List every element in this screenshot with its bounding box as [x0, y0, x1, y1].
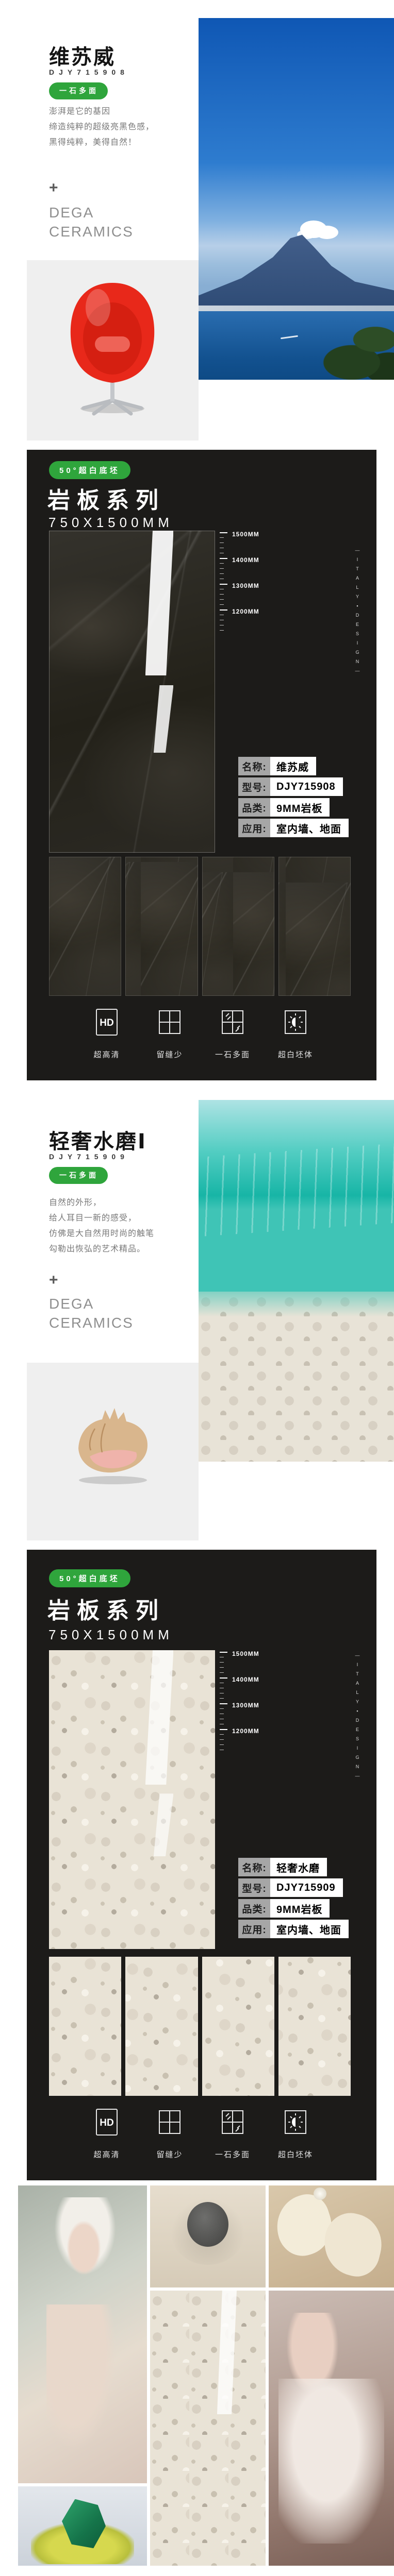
tile-panel: [202, 857, 274, 996]
hero-image-vesuvius: [199, 18, 394, 380]
product-title: 维苏威: [49, 40, 116, 70]
brand-line: DEGA: [49, 1294, 134, 1313]
description-line: 黑得纯粹，美得自然！: [49, 135, 154, 150]
tile-panel: [125, 857, 198, 996]
feature-label: 留缝少: [141, 1049, 198, 1060]
collage-image-white-petals: [269, 2185, 394, 2287]
figure: [46, 2304, 118, 2453]
description-line: 给人耳目一新的感受，: [49, 1211, 154, 1226]
collage-image-terrazzo-sample: [150, 2291, 266, 2566]
water-edge: [199, 1281, 394, 1317]
series-badge: 50°超白底坯: [49, 461, 130, 479]
face: [67, 2221, 101, 2275]
brand-line: CERAMICS: [49, 1313, 134, 1332]
mood-board-collage: [18, 2185, 394, 2566]
spec-value: DJY715909: [270, 1878, 343, 1897]
italy-design-vertical-label: —ITALY▪DESIGN—: [354, 1653, 361, 1849]
light-icon: [284, 2106, 307, 2138]
ruler-label: 1300MM: [232, 582, 259, 589]
prop-box: [27, 1363, 199, 1540]
multi-face-grid-icon: [221, 2106, 244, 2138]
product-title: 轻奢水磨Ⅰ: [49, 1125, 147, 1155]
feature-hd: HD 超高清: [78, 2106, 135, 2160]
italy-design-vertical-label: —ITALY▪DESIGN—: [354, 548, 361, 743]
hero-image-turquoise-shore: [199, 1100, 394, 1462]
product-code: DJY715909: [49, 1153, 129, 1161]
tile-panel: [49, 857, 121, 996]
spec-label: 名称:: [238, 757, 270, 775]
spec-value: 9MM岩板: [270, 798, 330, 817]
ruler-label: 1200MM: [232, 608, 259, 615]
light-icon: [284, 1006, 307, 1038]
feature-label: 超白坯体: [267, 1049, 324, 1060]
collage-image-emerald-mineral: [18, 2486, 147, 2566]
feature-label: 留缝少: [141, 2149, 198, 2160]
size-ruler: [220, 532, 228, 635]
spec-label: 应用:: [238, 819, 270, 837]
ruler-label: 1500MM: [232, 1650, 259, 1657]
spec-row: 型号:DJY715909: [238, 1878, 349, 1897]
spec-label: 名称:: [238, 1858, 270, 1876]
feature-multi-face: 一石多面: [204, 2106, 261, 2160]
multi-face-grid-icon: [221, 1006, 244, 1038]
tile-panel: [278, 1957, 351, 2096]
tile-panel: [202, 1957, 274, 2096]
ruler-label: 1300MM: [232, 1702, 259, 1709]
stone: [187, 2202, 229, 2247]
lace-dress: [278, 2379, 384, 2544]
spec-row: 品类:9MM岩板: [238, 1899, 349, 1918]
brand-logo: DEGA CERAMICS: [49, 1294, 134, 1332]
one-stone-multi-face-badge: 一石多面: [49, 1167, 108, 1184]
gloss-reflection: [154, 1793, 174, 1856]
feature-white-body: 超白坯体: [267, 1006, 324, 1060]
spec-value: 轻奢水磨: [270, 1858, 327, 1876]
tile-image-dark-marble: [49, 531, 215, 853]
hd-icon: HD: [95, 2106, 119, 2138]
spec-value: 9MM岩板: [270, 1899, 330, 1918]
description-line: 自然的外形，: [49, 1195, 154, 1211]
ruler-label: 1400MM: [232, 556, 259, 564]
plus-icon: +: [49, 179, 58, 197]
collage-image-pale-portrait: [18, 2185, 147, 2483]
tile-strip: [49, 1957, 351, 2096]
tile-panel: [49, 1957, 121, 2096]
size-ruler: [220, 1652, 228, 1755]
feature-hd: HD 超高清: [78, 1006, 135, 1060]
tile-panel: [125, 1957, 198, 2096]
spec-value: 室内墙、地面: [270, 819, 349, 837]
series-title: 岩板系列: [47, 482, 165, 515]
tile-image-light-terrazzo: [49, 1650, 215, 1949]
feature-less-seams: 留缝少: [141, 2106, 198, 2160]
series-badge: 50°超白底坯: [49, 1569, 130, 1587]
feature-label: 超白坯体: [267, 2149, 324, 2160]
description-line: 澎湃是它的基因: [49, 104, 154, 120]
description-line: 勾勒出恢弘的艺术精品。: [49, 1242, 154, 1257]
series-size: 750X1500MM: [48, 1627, 173, 1643]
pebble-sand: [199, 1292, 394, 1462]
product-description: 澎湃是它的基因 缔造纯粹的超级亮黑色感， 黑得纯粹，美得自然！: [49, 104, 154, 150]
tile-strip: [49, 857, 351, 996]
spec-table: 名称:维苏威 型号:DJY715908 品类:9MM岩板 应用:室内墙、地面: [238, 757, 349, 839]
feature-label: 一石多面: [204, 2149, 261, 2160]
description-line: 缔造纯粹的超级亮黑色感，: [49, 120, 154, 135]
spec-row: 品类:9MM岩板: [238, 798, 349, 817]
hd-icon: HD: [95, 1006, 119, 1038]
product-description: 自然的外形， 给人耳目一新的感受， 仿佛是大自然用时尚的触笔 勾勒出恢弘的艺术精…: [49, 1195, 154, 1257]
wave-streaks: [199, 1143, 394, 1239]
description-line: 仿佛是大自然用时尚的触笔: [49, 1226, 154, 1242]
ruler-label: 1400MM: [232, 1676, 259, 1683]
feature-white-body: 超白坯体: [267, 2106, 324, 2160]
spec-label: 应用:: [238, 1920, 270, 1938]
svg-text:HD: HD: [100, 2117, 113, 2128]
ruler-label: 1500MM: [232, 531, 259, 538]
spec-row: 应用:室内墙、地面: [238, 1920, 349, 1938]
ruler-label: 1200MM: [232, 1727, 259, 1735]
conch-shell-image: [59, 1399, 167, 1486]
spec-table: 名称:轻奢水磨 型号:DJY715909 品类:9MM岩板 应用:室内墙、地面: [238, 1858, 349, 1940]
feature-less-seams: 留缝少: [141, 1006, 198, 1060]
pearl: [314, 2188, 326, 2200]
product-detail-page: 维苏威 DJY715908 一石多面 澎湃是它的基因 缔造纯粹的超级亮黑色感， …: [0, 0, 394, 2576]
spec-value: 室内墙、地面: [270, 1920, 349, 1938]
grid-icon: [158, 1006, 182, 1038]
grid-icon: [158, 2106, 182, 2138]
series-section: 50°超白底坯 岩板系列 750X1500MM —ITALY▪DESIGN— 1…: [27, 1550, 376, 2180]
spec-label: 品类:: [238, 798, 270, 817]
spec-row: 应用:室内墙、地面: [238, 819, 349, 837]
spec-label: 品类:: [238, 1899, 270, 1918]
red-chair-image: [61, 279, 164, 418]
brand-logo: DEGA CERAMICS: [49, 203, 134, 241]
svg-text:HD: HD: [100, 1018, 113, 1028]
feature-label: 一石多面: [204, 1049, 261, 1060]
tile-panel: [278, 857, 351, 996]
gloss-reflection: [154, 685, 174, 753]
spec-row: 型号:DJY715908: [238, 777, 349, 796]
feature-label: 超高清: [78, 2149, 135, 2160]
series-title: 岩板系列: [47, 1592, 165, 1625]
spec-value: 维苏威: [270, 757, 316, 775]
prop-box: [27, 260, 199, 440]
plus-icon: +: [49, 1272, 58, 1289]
series-section: 50°超白底坯 岩板系列 750X1500MM —ITALY▪DESIGN— 1…: [27, 450, 376, 1080]
gloss-reflection: [145, 1650, 174, 1785]
spec-row: 名称:维苏威: [238, 757, 349, 775]
feature-label: 超高清: [78, 1049, 135, 1060]
product-code: DJY715908: [49, 68, 129, 76]
series-size: 750X1500MM: [48, 515, 173, 531]
coastal-trees: [300, 322, 394, 380]
spec-label: 型号:: [238, 777, 270, 796]
spec-row: 名称:轻奢水磨: [238, 1858, 349, 1876]
gloss-reflection: [145, 531, 174, 675]
collage-image-lace-dress-portrait: [269, 2291, 394, 2566]
brand-line: CERAMICS: [49, 222, 134, 241]
spec-value: DJY715908: [270, 777, 343, 796]
brand-line: DEGA: [49, 203, 134, 222]
gloss-reflection: [217, 2291, 237, 2414]
cloud: [300, 221, 327, 238]
spec-label: 型号:: [238, 1878, 270, 1897]
feature-multi-face: 一石多面: [204, 1006, 261, 1060]
one-stone-multi-face-badge: 一石多面: [49, 82, 108, 99]
collage-image-zen-stone: [150, 2185, 266, 2287]
